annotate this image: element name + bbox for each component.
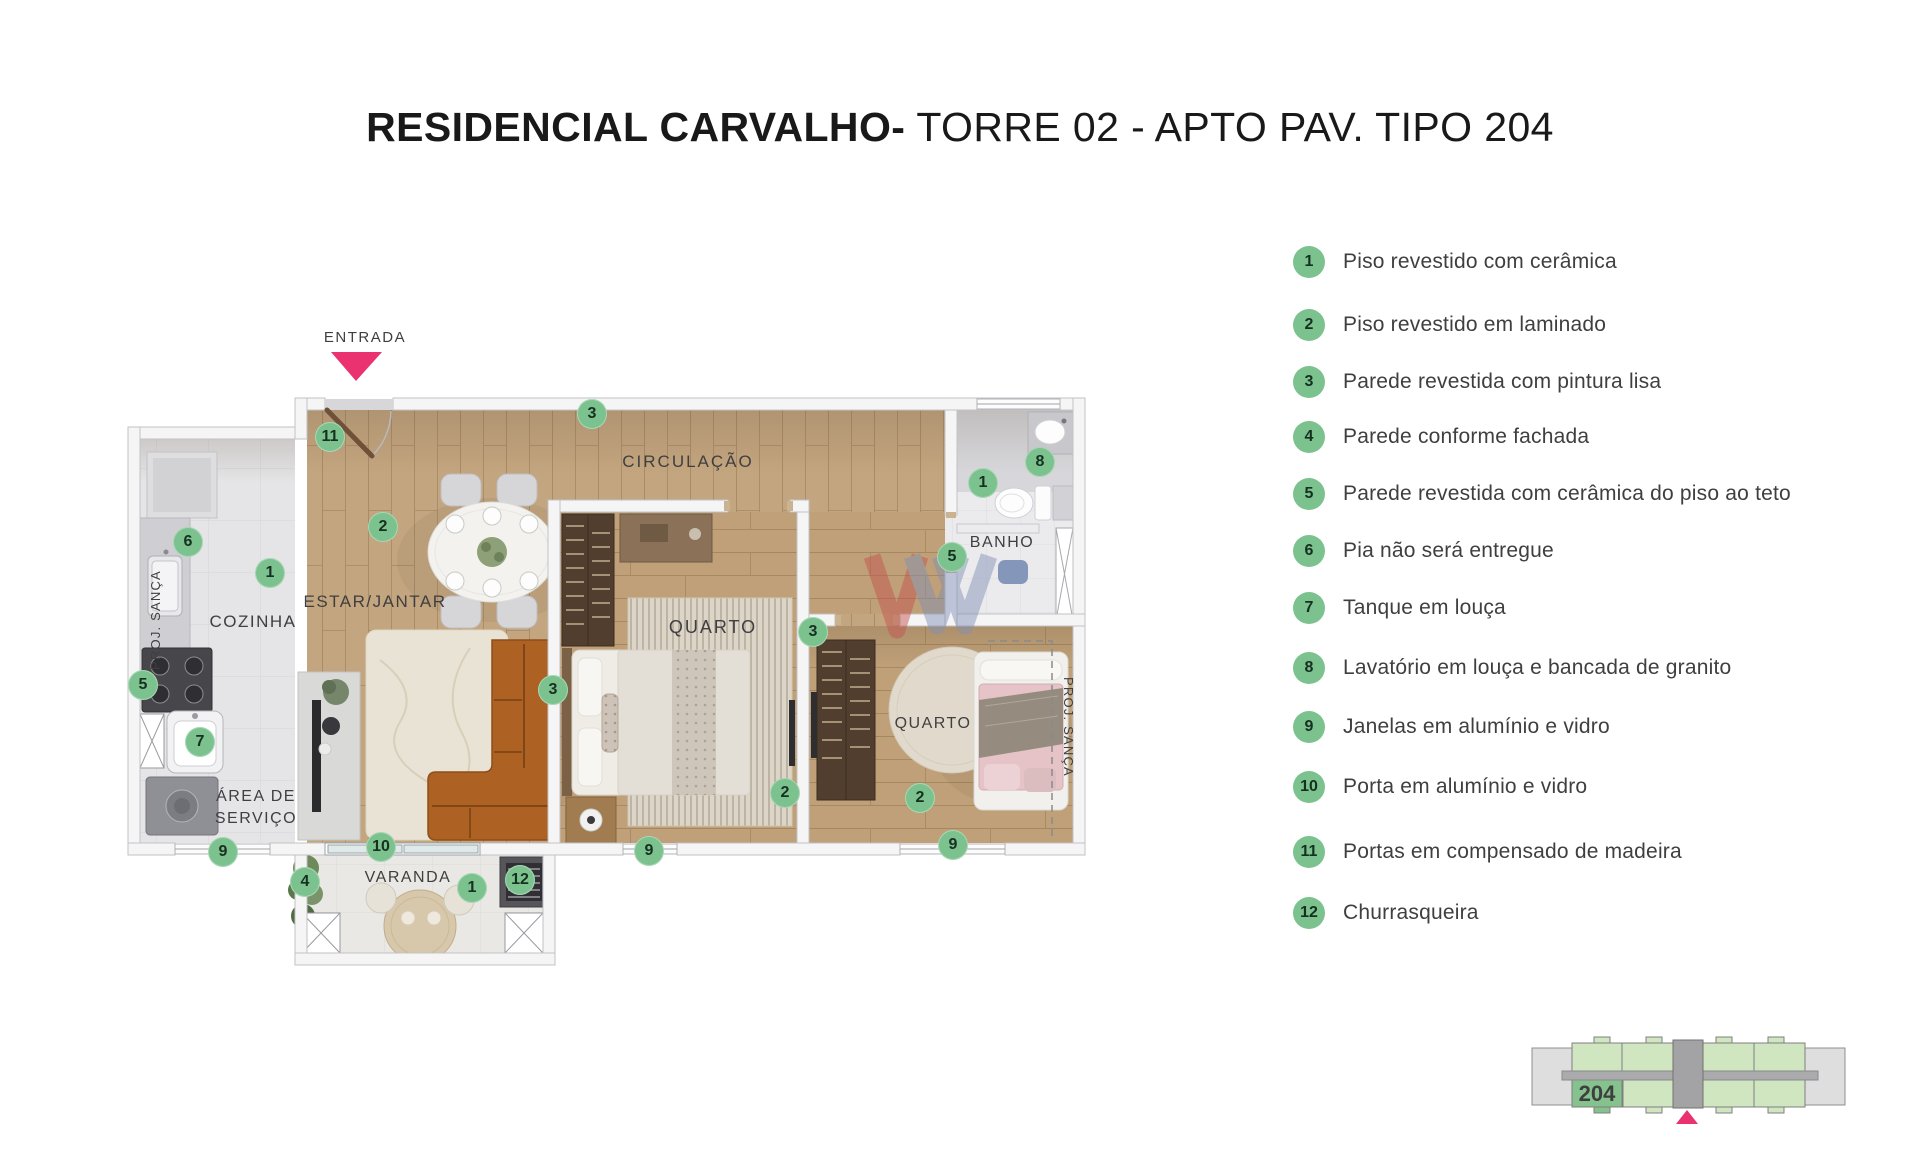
legend-item: 10 Porta em alumínio e vidro (1293, 771, 1587, 803)
pillow (1024, 768, 1056, 792)
legend-item: 7 Tanque em louça (1293, 592, 1506, 624)
legend-item-text: Parede revestida com pintura lisa (1343, 370, 1661, 394)
keyplan-unit-label: 204 (1579, 1081, 1616, 1106)
legend-item: 8 Lavatório em louça e bancada de granit… (1293, 652, 1731, 684)
legend-item-number: 7 (1293, 592, 1325, 624)
legend-item: 4 Parede conforme fachada (1293, 421, 1589, 453)
legend-item-number: 8 (1293, 652, 1325, 684)
legend-item: 2 Piso revestido em laminado (1293, 309, 1606, 341)
entry-threshold (325, 399, 393, 410)
legend-item-text: Portas em compensado de madeira (1343, 840, 1682, 864)
window (977, 399, 1060, 409)
tv (312, 700, 321, 812)
bed-headboard (562, 648, 572, 796)
legend-item: 3 Parede revestida com pintura lisa (1293, 366, 1661, 398)
legend-item-text: Porta em alumínio e vidro (1343, 775, 1587, 799)
label-bedroom2: QUARTO (895, 715, 972, 732)
legend-item-text: Pia não será entregue (1343, 539, 1554, 563)
label-balcony: VARANDA (365, 869, 452, 886)
legend-item-number: 10 (1293, 771, 1325, 803)
pillow (984, 764, 1020, 790)
legend-item-number: 12 (1293, 897, 1325, 929)
label-bathroom: BANHO (970, 534, 1034, 551)
finish-legend: 1 Piso revestido com cerâmica 2 Piso rev… (1293, 0, 1883, 990)
dining-chair (441, 474, 481, 506)
sliding-glass-door (325, 843, 480, 855)
pillow (578, 658, 602, 716)
legend-item-text: Churrasqueira (1343, 901, 1479, 925)
bathroom-sink (1035, 420, 1065, 444)
label-bedroom1: QUARTO (669, 617, 757, 637)
bath-mat (998, 560, 1028, 584)
legend-item-number: 11 (1293, 836, 1325, 868)
legend-item: 5 Parede revestida com cerâmica do piso … (1293, 478, 1791, 510)
balcony-chair (444, 885, 474, 915)
legend-item-text: Parede revestida com cerâmica do piso ao… (1343, 482, 1791, 506)
window (623, 844, 677, 854)
label-kitchen: COZINHA (210, 612, 297, 631)
legend-item-text: Janelas em alumínio e vidro (1343, 715, 1610, 739)
label-service-2: SERVIÇO (215, 810, 297, 827)
legend-item-number: 9 (1293, 711, 1325, 743)
window (900, 844, 1005, 854)
legend-item: 11 Portas em compensado de madeira (1293, 836, 1682, 868)
accent-pillow (602, 694, 618, 752)
legend-item-number: 5 (1293, 478, 1325, 510)
legend-item-number: 2 (1293, 309, 1325, 341)
balcony-chair (366, 883, 396, 913)
legend-item-text: Lavatório em louça e bancada de granito (1343, 656, 1731, 680)
bolster-pillow (980, 660, 1062, 680)
half-wall (957, 524, 1039, 533)
dining-chair (497, 474, 537, 506)
window (175, 844, 270, 854)
label-proj-sanca-right: PROJ. SANÇA (1061, 677, 1076, 777)
label-service-1: ÁREA DE (216, 786, 296, 805)
bedroom2-tv (811, 692, 817, 758)
bathroom-cabinet (1053, 486, 1073, 520)
legend-item: 12 Churrasqueira (1293, 897, 1479, 929)
legend-item-text: Tanque em louça (1343, 596, 1506, 620)
legend-item-text: Piso revestido em laminado (1343, 313, 1606, 337)
toilet-tank (1035, 486, 1051, 520)
legend-item: 6 Pia não será entregue (1293, 535, 1554, 567)
legend-item-number: 6 (1293, 535, 1325, 567)
keyplan-core (1673, 1040, 1703, 1108)
keyplan: 204 (1532, 1037, 1845, 1124)
bedroom1-tv (789, 700, 795, 766)
legend-item-text: Parede conforme fachada (1343, 425, 1589, 449)
label-proj-sanca-left: PROJ. SANÇA (148, 570, 163, 670)
pillow (578, 728, 602, 786)
label-circulation: CIRCULAÇÃO (622, 452, 753, 471)
legend-item-number: 3 (1293, 366, 1325, 398)
toilet (995, 488, 1033, 518)
legend-item: 1 Piso revestido com cerâmica (1293, 246, 1617, 278)
legend-item-text: Piso revestido com cerâmica (1343, 250, 1617, 274)
entrance-label: ENTRADA (324, 329, 406, 346)
legend-item-number: 1 (1293, 246, 1325, 278)
legend-item-number: 4 (1293, 421, 1325, 453)
legend-item: 9 Janelas em alumínio e vidro (1293, 711, 1610, 743)
centerpiece-plant (477, 537, 507, 567)
page: RESIDENCIAL CARVALHO- TORRE 02 - APTO PA… (0, 0, 1920, 1152)
label-living: ESTAR/JANTAR (304, 592, 447, 611)
entrance-arrow-icon (331, 352, 382, 381)
keyplan-arrow-icon (1676, 1110, 1698, 1124)
